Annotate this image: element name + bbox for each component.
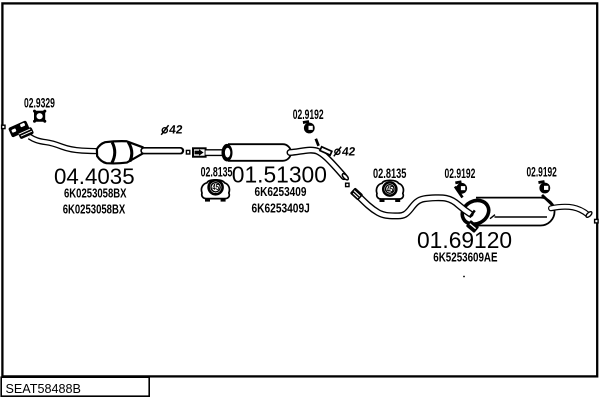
svg-text:02.9192: 02.9192: [293, 108, 324, 122]
svg-text:02.9329: 02.9329: [24, 97, 55, 111]
svg-text:6K6253409: 6K6253409: [255, 186, 307, 199]
svg-text:6K6253409J: 6K6253409J: [252, 201, 310, 215]
svg-text:02.8135: 02.8135: [201, 165, 233, 181]
svg-text:6K0253058BX: 6K0253058BX: [64, 187, 127, 201]
svg-text:45: 45: [387, 186, 394, 194]
svg-text:02.8135: 02.8135: [373, 165, 407, 182]
svg-text:04.4035: 04.4035: [54, 164, 135, 189]
svg-text:42: 42: [341, 145, 356, 159]
svg-text:01.51300: 01.51300: [232, 162, 327, 188]
svg-text:02.9192: 02.9192: [445, 167, 476, 181]
svg-text:42: 42: [168, 123, 183, 137]
svg-text:45: 45: [212, 185, 219, 193]
svg-text:6K0253058BX: 6K0253058BX: [63, 203, 126, 217]
svg-text:01.69120: 01.69120: [417, 227, 512, 253]
svg-text:02.9192: 02.9192: [527, 166, 557, 181]
svg-text:SEAT58488B: SEAT58488B: [6, 382, 81, 396]
svg-text:6K5253609AE: 6K5253609AE: [433, 251, 498, 265]
